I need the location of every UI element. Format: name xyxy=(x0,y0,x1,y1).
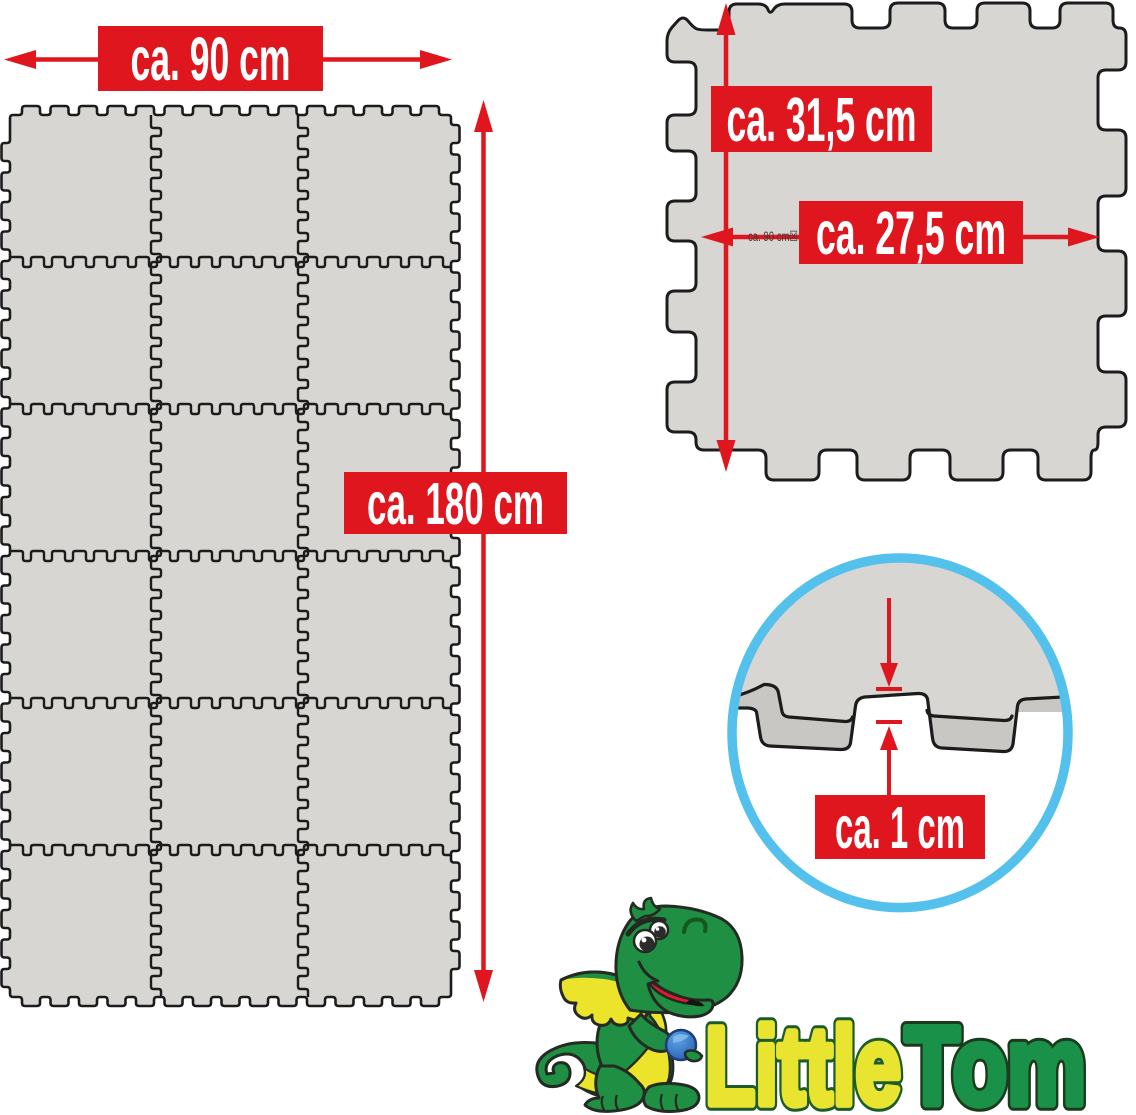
svg-text:ca. 90 cm☒: ca. 90 cm☒ xyxy=(748,228,798,244)
svg-text:Little: Little xyxy=(705,1005,901,1115)
svg-text:ca. 180 cm: ca. 180 cm xyxy=(367,471,544,537)
svg-text:ca. 1 cm: ca. 1 cm xyxy=(835,795,965,861)
svg-text:ca. 27,5 cm: ca. 27,5 cm xyxy=(816,199,1006,267)
svg-text:ca. 31,5 cm: ca. 31,5 cm xyxy=(727,86,917,155)
svg-text:Tom: Tom xyxy=(905,1005,1086,1115)
svg-text:ca. 90 cm: ca. 90 cm xyxy=(131,25,291,93)
